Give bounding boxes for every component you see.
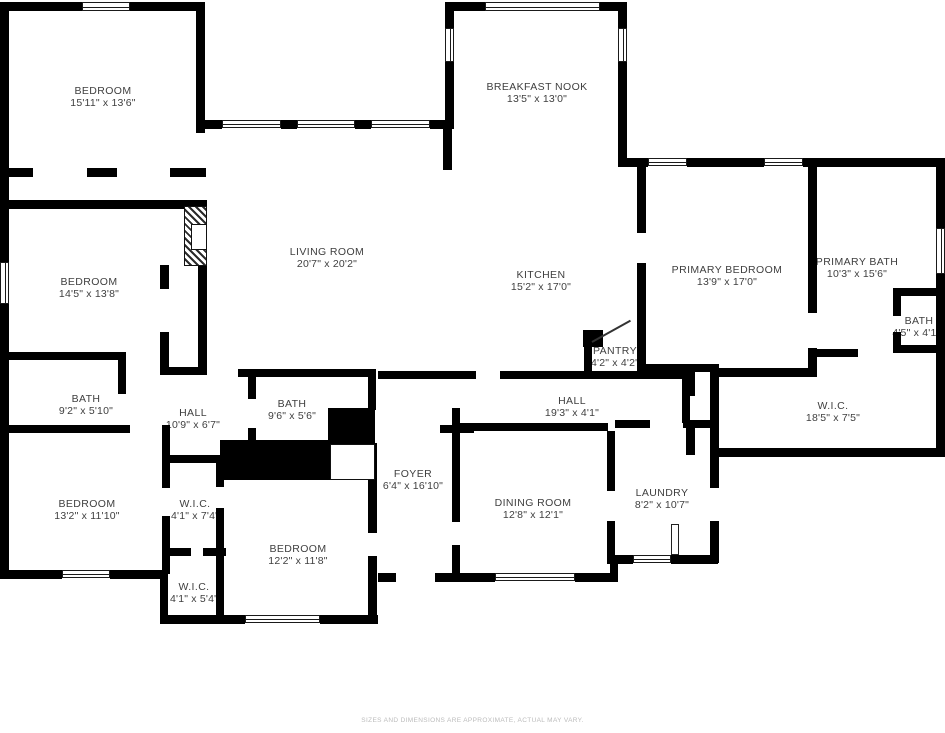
room-name: W.I.C.: [171, 498, 219, 510]
window: [485, 2, 600, 11]
wall: [443, 120, 452, 170]
room-label-bath-left: BATH9'2" x 5'10": [59, 393, 113, 417]
wall: [452, 545, 460, 575]
wall: [803, 158, 936, 167]
wall: [637, 163, 646, 233]
room-name: BEDROOM: [54, 498, 119, 510]
room-label-hall-main: HALL19'3" x 4'1": [545, 395, 599, 419]
fireplace-box: [191, 224, 207, 250]
wall: [160, 265, 169, 289]
wall: [162, 425, 170, 488]
closet-notch: [330, 444, 375, 480]
room-dims: 9'6" x 5'6": [268, 410, 316, 422]
room-label-bedroom-2: BEDROOM14'5" x 13'8": [59, 276, 119, 300]
room-label-breakfast-nook: BREAKFAST NOOK13'5" x 13'0": [486, 81, 587, 105]
wall: [163, 615, 245, 624]
room-name: PRIMARY BEDROOM: [672, 264, 783, 276]
wall: [0, 304, 9, 574]
wall: [170, 168, 206, 177]
window: [0, 262, 9, 304]
window-glass-line: [450, 29, 451, 61]
room-label-dining-room: DINING ROOM12'8" x 12'1": [495, 497, 572, 521]
wall: [460, 423, 608, 431]
room-name: BEDROOM: [59, 276, 119, 288]
wall: [216, 556, 224, 615]
wall: [118, 352, 126, 394]
wall: [575, 573, 615, 582]
room-name: HALL: [545, 395, 599, 407]
room-label-bedroom-1: BEDROOM15'11" x 13'6": [70, 85, 135, 109]
room-dims: 12'8" x 12'1": [495, 509, 572, 521]
wall: [355, 120, 371, 129]
room-label-bedroom-4: BEDROOM13'2" x 11'10": [54, 498, 119, 522]
window: [222, 120, 281, 128]
room-label-foyer: FOYER6'4" x 16'10": [383, 468, 443, 492]
room-name: FOYER: [383, 468, 443, 480]
room-name: PRIMARY BATH: [816, 256, 898, 268]
window: [445, 28, 454, 62]
wall: [682, 371, 690, 423]
fixture-mass: [220, 440, 330, 480]
wall: [610, 555, 618, 582]
window: [62, 570, 110, 578]
room-label-primary-bedroom: PRIMARY BEDROOM13'9" x 17'0": [672, 264, 783, 288]
wall: [638, 318, 646, 373]
wall: [163, 548, 191, 556]
wall: [810, 349, 858, 357]
room-dims: 19'3" x 4'1": [545, 407, 599, 419]
room-dims: 15'11" x 13'6": [70, 97, 135, 109]
wall: [808, 163, 817, 313]
wall: [435, 573, 495, 582]
wall: [671, 555, 718, 564]
wall: [368, 556, 377, 623]
wall: [710, 457, 719, 488]
window-glass-line: [765, 162, 802, 163]
room-label-wic-1: W.I.C.4'1" x 7'4": [171, 498, 219, 522]
room-dims: 12'2" x 11'8": [268, 555, 327, 567]
room-name: LAUNDRY: [635, 487, 689, 499]
window: [371, 120, 430, 128]
wall: [110, 570, 168, 579]
wall: [196, 2, 205, 133]
room-label-pantry: PANTRY4'2" x 4'2": [591, 345, 639, 369]
room-label-laundry: LAUNDRY8'2" x 10'7": [635, 487, 689, 511]
window-glass-line: [623, 29, 624, 61]
wall: [936, 158, 945, 228]
wall: [683, 420, 710, 428]
window-glass-line: [298, 124, 354, 125]
room-label-hall-left: HALL10'9" x 6'7": [166, 407, 220, 431]
room-dims: 6'4" x 16'10": [383, 480, 443, 492]
wall: [893, 288, 945, 296]
room-name: BREAKFAST NOOK: [486, 81, 587, 93]
room-name: W.I.C.: [806, 400, 860, 412]
window-glass-line: [63, 574, 109, 575]
wall: [607, 431, 615, 491]
room-dims: 15'2" x 17'0": [511, 281, 571, 293]
room-dims: 4'2" x 4'2": [591, 357, 639, 369]
window-glass-line: [496, 577, 574, 578]
wall: [687, 158, 764, 167]
window-glass-line: [634, 559, 670, 560]
wall: [198, 263, 207, 375]
wall: [5, 168, 33, 177]
room-label-living-room: LIVING ROOM20'7" x 20'2": [290, 246, 364, 270]
room-label-primary-bath: PRIMARY BATH10'3" x 15'6": [816, 256, 898, 280]
wall: [618, 62, 627, 158]
room-name: KITCHEN: [511, 269, 571, 281]
room-name: BEDROOM: [70, 85, 135, 97]
wall: [710, 368, 719, 457]
wall: [618, 2, 627, 28]
room-name: LIVING ROOM: [290, 246, 364, 258]
room-dims: 14'5" x 13'8": [59, 288, 119, 300]
room-label-bath-center: BATH9'6" x 5'6": [268, 398, 316, 422]
room-dims: 4'1" x 5'4": [170, 593, 218, 605]
room-dims: 10'9" x 6'7": [166, 419, 220, 431]
room-dims: 13'2" x 11'10": [54, 510, 119, 522]
window-glass-line: [5, 263, 6, 303]
fixture-mass: [328, 408, 375, 444]
room-name: BATH: [59, 393, 113, 405]
window: [297, 120, 355, 128]
wall: [445, 62, 454, 129]
window-glass-line: [372, 124, 429, 125]
wall: [281, 120, 297, 129]
wall: [203, 548, 226, 556]
window: [648, 158, 687, 166]
wall: [196, 120, 222, 129]
room-name: BEDROOM: [268, 543, 327, 555]
room-dims: 9'2" x 5'10": [59, 405, 113, 417]
room-label-wic-2: W.I.C.4'1" x 5'4": [170, 581, 218, 605]
room-dims: 13'5" x 13'0": [486, 93, 587, 105]
wall: [5, 352, 123, 360]
wall: [378, 371, 476, 379]
open-door-leaf: [671, 524, 679, 555]
disclaimer-text: SIZES AND DIMENSIONS ARE APPROXIMATE, AC…: [361, 717, 583, 724]
wall: [713, 368, 817, 377]
wall: [0, 200, 207, 209]
wall: [452, 431, 460, 522]
room-dims: 18'5" x 7'5": [806, 412, 860, 424]
wall: [0, 570, 62, 579]
wall: [378, 573, 396, 582]
wall: [160, 367, 207, 375]
room-name: W.I.C.: [170, 581, 218, 593]
window: [764, 158, 803, 166]
wall: [893, 345, 945, 353]
window: [618, 28, 627, 62]
wall: [0, 425, 130, 433]
window-glass-line: [223, 124, 280, 125]
room-label-kitchen: KITCHEN15'2" x 17'0": [511, 269, 571, 293]
floor-plan: BEDROOM15'11" x 13'6" BREAKFAST NOOK13'5…: [0, 0, 945, 733]
window-glass-line: [486, 7, 599, 8]
room-dims: 10'3" x 15'6": [816, 268, 898, 280]
window-glass-line: [941, 229, 942, 273]
wall: [500, 371, 648, 379]
window-glass-line: [649, 162, 686, 163]
wall: [162, 516, 170, 574]
window-glass-line: [246, 619, 319, 620]
room-label-bedroom-3: BEDROOM12'2" x 11'8": [268, 543, 327, 567]
wall: [87, 168, 117, 177]
room-name: HALL: [166, 407, 220, 419]
window: [936, 228, 945, 274]
wall: [615, 420, 650, 428]
wall: [248, 369, 256, 399]
wall: [445, 2, 454, 28]
room-dims: 4'1" x 7'4": [171, 510, 219, 522]
wall: [0, 2, 9, 264]
wall: [710, 448, 945, 457]
room-dims: 13'9" x 17'0": [672, 276, 783, 288]
wall: [368, 498, 377, 533]
wall: [686, 424, 695, 455]
room-dims: 20'7" x 20'2": [290, 258, 364, 270]
wall: [130, 2, 205, 11]
wall: [238, 369, 375, 377]
wall: [936, 274, 945, 457]
window-glass-line: [83, 7, 129, 8]
room-dims: 8'2" x 10'7": [635, 499, 689, 511]
room-name: DINING ROOM: [495, 497, 572, 509]
window: [82, 2, 130, 11]
window: [495, 573, 575, 581]
room-name: BATH: [268, 398, 316, 410]
window: [633, 555, 671, 563]
wall: [216, 508, 224, 548]
window: [245, 615, 320, 623]
wall: [368, 369, 376, 410]
room-label-wic-primary: W.I.C.18'5" x 7'5": [806, 400, 860, 424]
wall: [5, 2, 82, 11]
